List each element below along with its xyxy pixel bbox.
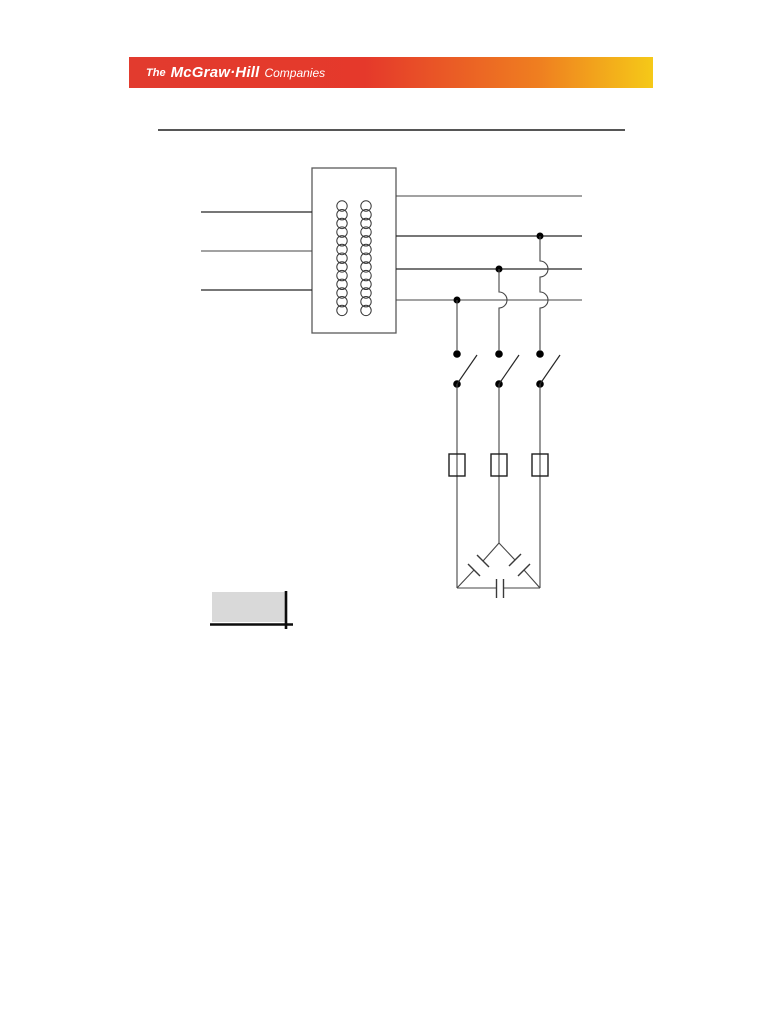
delta-left-capacitor (457, 543, 499, 588)
delta-left-lead-lower (457, 570, 474, 588)
capacitor-delta-bank (457, 543, 540, 598)
phase-wire-b (499, 269, 507, 350)
circuit-figure (0, 0, 781, 1024)
supply-lines (201, 212, 312, 290)
accent-box-fill (212, 592, 286, 622)
primary-coil (337, 201, 347, 316)
switch-top-contact-dot (453, 350, 461, 358)
page: The McGraw·Hill Companies (0, 0, 781, 1024)
switch-top-contact-dot (536, 350, 544, 358)
feeder-lines (396, 196, 582, 300)
delta-right-lead-lower (524, 570, 540, 588)
disconnect-switch-2 (495, 350, 519, 388)
phase-wire-c (540, 236, 548, 350)
disconnect-switch-1 (453, 350, 477, 388)
delta-bottom-capacitor (457, 579, 540, 598)
switch-top-contact-dot (495, 350, 503, 358)
switch-blade (499, 355, 519, 384)
corner-accent-box (210, 591, 293, 629)
delta-right-capacitor (499, 543, 540, 588)
disconnect-switch-3 (536, 350, 560, 388)
switch-blade (540, 355, 560, 384)
phase-wires (457, 236, 548, 350)
delta-right-lead-upper (499, 543, 515, 560)
transformer-box (312, 168, 396, 333)
junction-dots (454, 233, 544, 304)
switch-blade (457, 355, 477, 384)
delta-left-lead-upper (483, 543, 499, 561)
secondary-coil (361, 201, 371, 316)
transformer-outline (312, 168, 396, 333)
load-wires (457, 384, 540, 588)
